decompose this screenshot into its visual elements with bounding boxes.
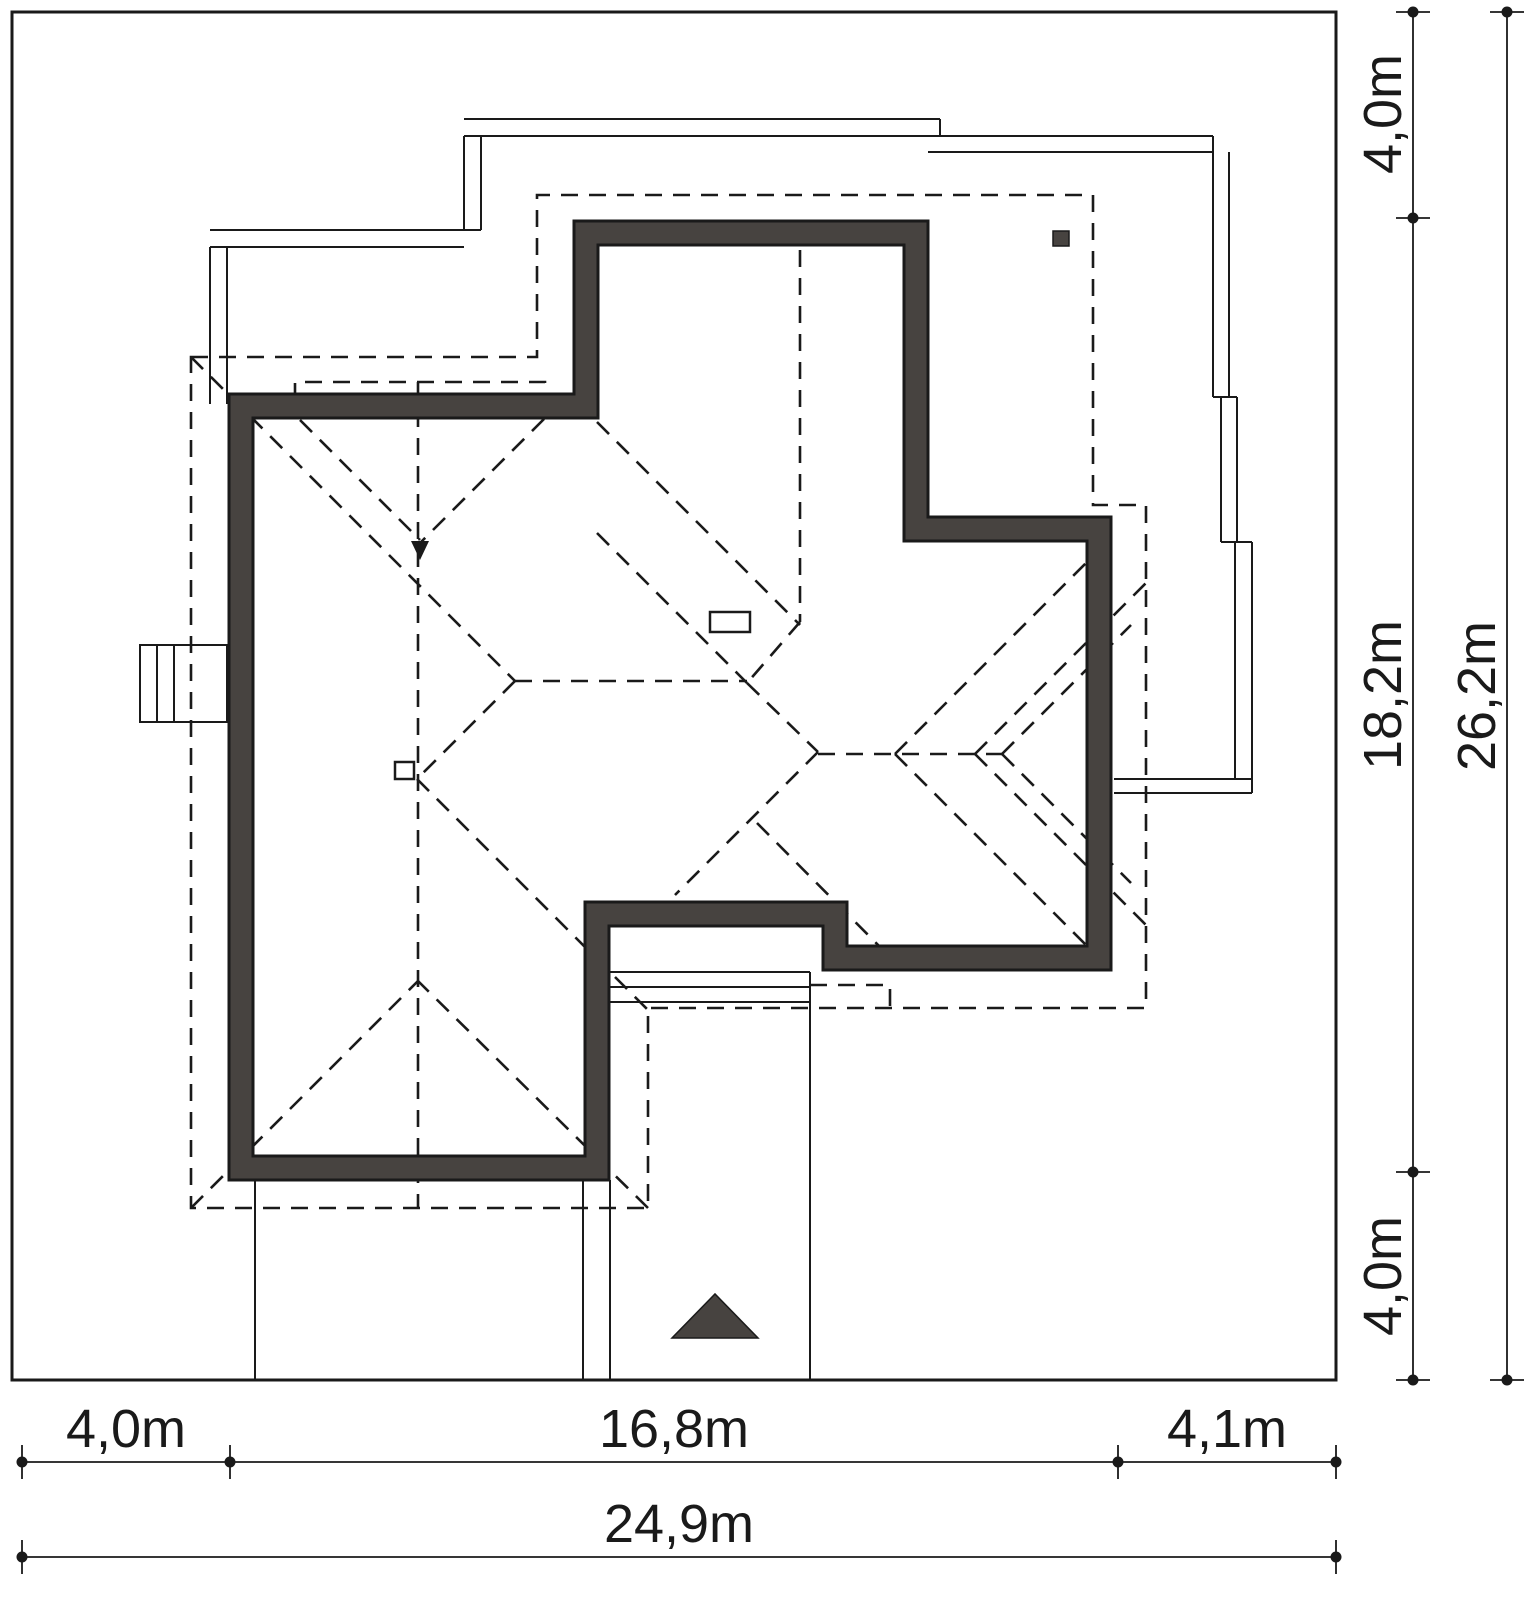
- plot-boundary: [12, 12, 1336, 1380]
- dim-label-right-top: 4,0m: [1353, 54, 1413, 174]
- dim-label-right-total: 26,2m: [1447, 621, 1507, 771]
- chimney: [1053, 231, 1069, 246]
- site-plan-drawing: 4,0m 16,8m 4,1m 24,9m 4,0m 18,2m 4,0m 26…: [0, 0, 1536, 1600]
- site-plan-page: 4,0m 16,8m 4,1m 24,9m 4,0m 18,2m 4,0m 26…: [0, 0, 1536, 1600]
- dim-label-right-bottom: 4,0m: [1353, 1216, 1413, 1336]
- dim-label-bottom-right: 4,1m: [1167, 1399, 1287, 1459]
- dim-label-right-middle: 18,2m: [1353, 620, 1413, 770]
- dim-label-bottom-center: 16,8m: [599, 1399, 749, 1459]
- roof-window-small: [395, 762, 414, 779]
- dim-label-bottom-left: 4,0m: [66, 1399, 186, 1459]
- roof-window-large: [710, 612, 750, 632]
- dim-label-bottom-total: 24,9m: [604, 1494, 754, 1554]
